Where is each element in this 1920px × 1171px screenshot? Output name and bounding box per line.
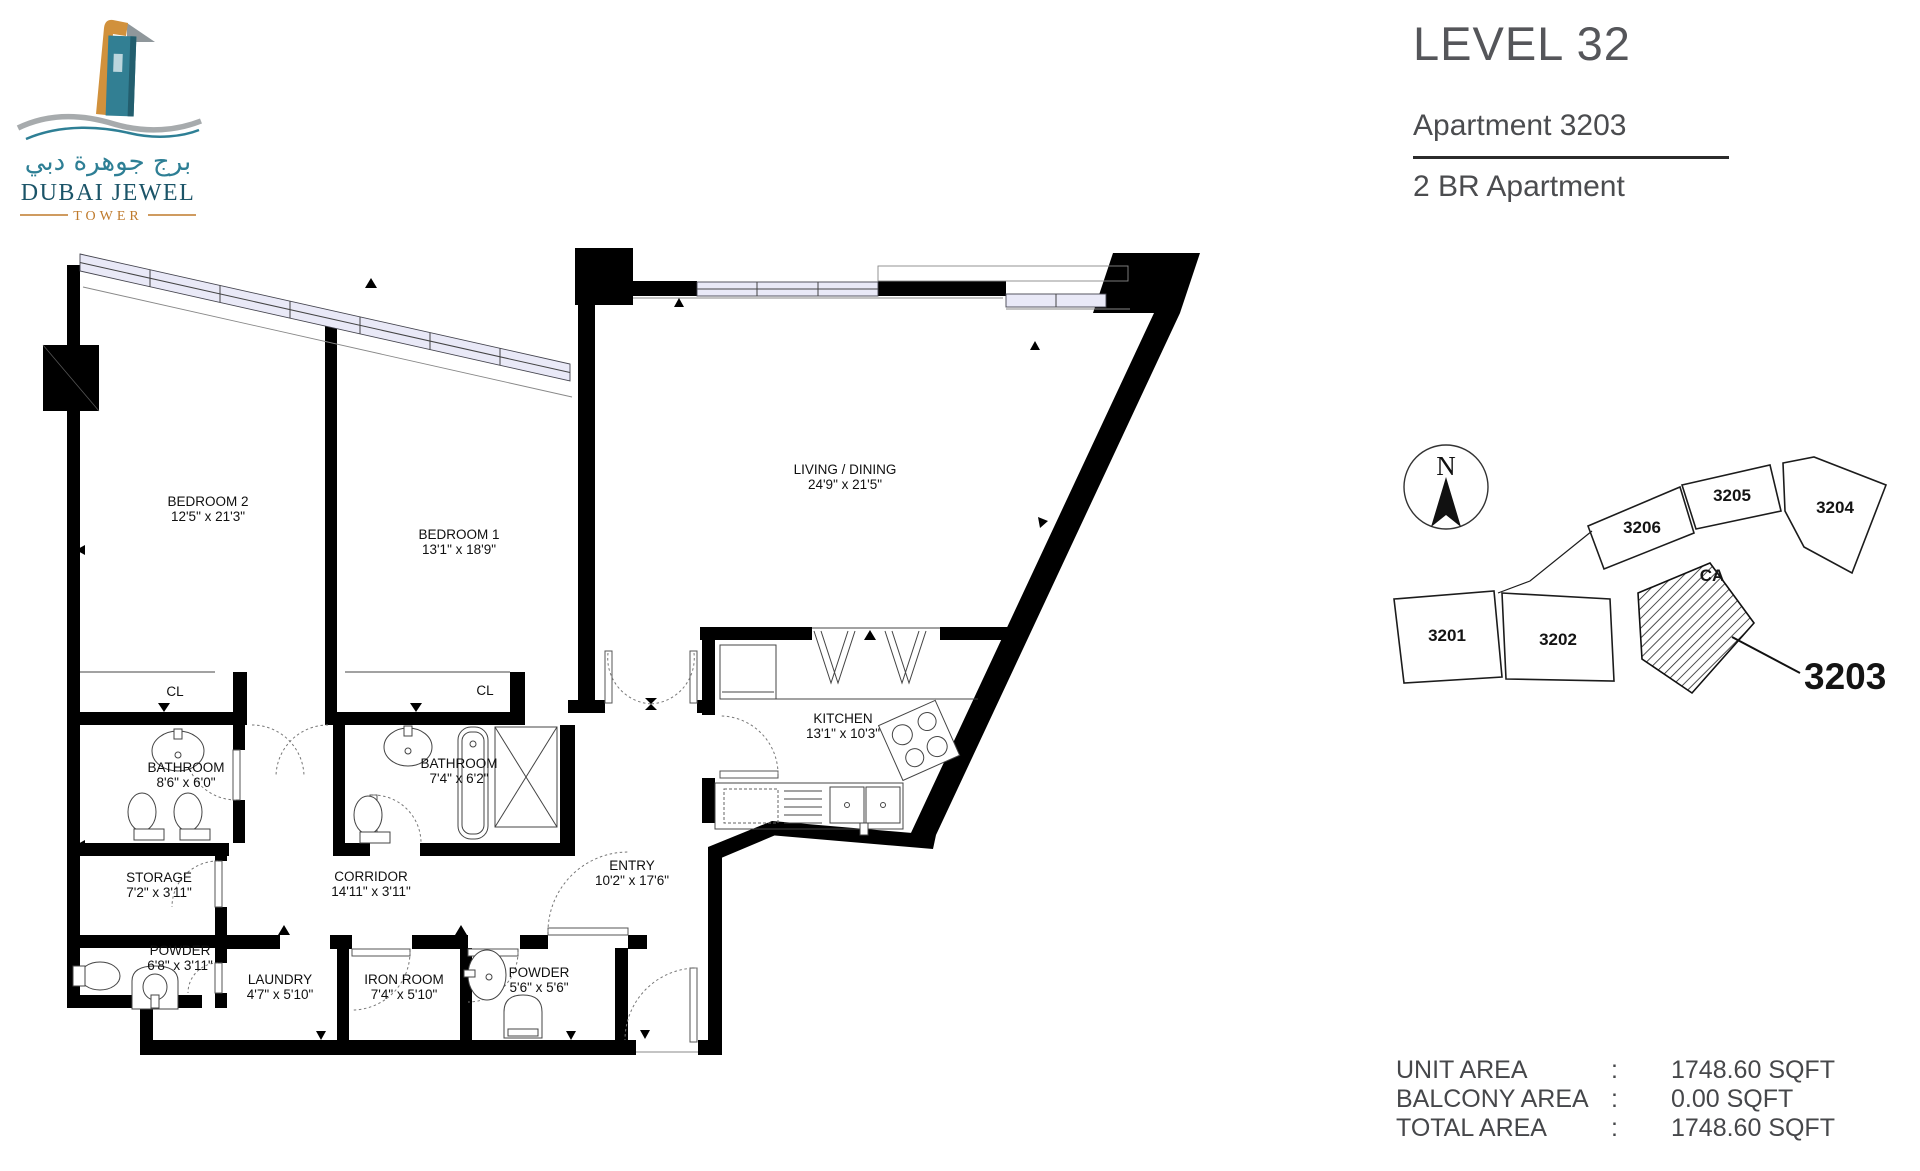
floor-plan: BEDROOM 2 12'5" x 21'3" BEDROOM 1 13'1" …: [40, 195, 1220, 1085]
area-row-balcony: BALCONY AREA : 0.00 SQFT: [1396, 1085, 1835, 1114]
room-storage: STORAGE: [126, 870, 192, 885]
unit-3204-label: 3204: [1816, 498, 1854, 517]
unit-3202-label: 3202: [1539, 630, 1577, 649]
area-row-total: TOTAL AREA : 1748.60 SQFT: [1396, 1114, 1835, 1143]
area-row-unit: UNIT AREA : 1748.60 SQFT: [1396, 1056, 1835, 1085]
room-kitchen-dims: 13'1" x 10'3": [806, 726, 880, 741]
room-powder2-dims: 5'6" x 5'6": [509, 980, 568, 995]
logo-arabic-text: برج جوهرة دبي: [25, 147, 192, 177]
room-bedroom2-dims: 12'5" x 21'3": [171, 509, 245, 524]
room-iron: IRON ROOM: [364, 972, 444, 987]
room-laundry: LAUNDRY: [248, 972, 312, 987]
room-storage-dims: 7'2" x 3'11": [126, 885, 192, 900]
room-entry: ENTRY: [609, 858, 655, 873]
room-living-dims: 24'9" x 21'5": [808, 477, 882, 492]
room-kitchen: KITCHEN: [813, 711, 872, 726]
callout-leader-line: [1732, 637, 1800, 673]
room-powder2: POWDER: [509, 965, 570, 980]
north-label: N: [1436, 451, 1456, 481]
page: برج جوهرة دبي DUBAI JEWEL TOWER LEVEL 32…: [0, 0, 1920, 1171]
common-area-label: CA: [1700, 566, 1725, 585]
room-bath-right-dims: 7'4" x 6'2": [429, 771, 488, 786]
unit-3203-highlighted: [1638, 563, 1754, 693]
unit-3206-label: 3206: [1623, 518, 1661, 537]
area-separator: :: [1611, 1085, 1671, 1114]
apartment-title: Apartment 3203: [1413, 109, 1729, 159]
area-label: BALCONY AREA: [1396, 1085, 1611, 1114]
header: LEVEL 32 Apartment 3203 2 BR Apartment: [1413, 16, 1729, 204]
room-bedroom1: BEDROOM 1: [418, 527, 499, 542]
area-label: TOTAL AREA: [1396, 1114, 1611, 1143]
room-corridor: CORRIDOR: [334, 869, 408, 884]
key-plan: N 3206 3205 3204 3201 3202 CA 3203: [1380, 423, 1920, 745]
room-laundry-dims: 4'7" x 5'10": [247, 987, 314, 1002]
room-entry-dims: 10'2" x 17'6": [595, 873, 669, 888]
area-value: 0.00 SQFT: [1671, 1085, 1835, 1114]
room-bath-left: BATHROOM: [148, 760, 225, 775]
room-bath-right: BATHROOM: [421, 756, 498, 771]
logo-wave-grey: [18, 117, 201, 130]
logo-tower: [106, 36, 137, 117]
north-compass-icon: N: [1404, 445, 1488, 529]
unit-3205-label: 3205: [1713, 486, 1751, 505]
room-powder1: POWDER: [150, 943, 211, 958]
level-title: LEVEL 32: [1413, 16, 1729, 71]
room-cl-left: CL: [166, 684, 184, 699]
room-corridor-dims: 14'11" x 3'11": [331, 884, 411, 899]
room-living: LIVING / DINING: [794, 462, 897, 477]
double-door-meeting-mark: [645, 698, 657, 710]
area-table: UNIT AREA : 1748.60 SQFT BALCONY AREA : …: [1396, 1056, 1835, 1143]
area-separator: :: [1611, 1056, 1671, 1085]
apartment-type: 2 BR Apartment: [1413, 170, 1729, 204]
unit-3201-label: 3201: [1428, 626, 1466, 645]
ca-boundary-line: [1498, 531, 1592, 593]
unit-3203-callout: 3203: [1804, 656, 1886, 697]
room-bath-left-dims: 8'6" x 6'0": [156, 775, 215, 790]
room-cl-right: CL: [476, 683, 494, 698]
room-bedroom2: BEDROOM 2: [167, 494, 248, 509]
area-value: 1748.60 SQFT: [1671, 1114, 1835, 1143]
area-label: UNIT AREA: [1396, 1056, 1611, 1085]
room-powder1-dims: 6'8" x 3'11": [147, 958, 213, 973]
room-iron-dims: 7'4" x 5'10": [371, 987, 438, 1002]
area-value: 1748.60 SQFT: [1671, 1056, 1835, 1085]
room-bedroom1-dims: 13'1" x 18'9": [422, 542, 496, 557]
area-separator: :: [1611, 1114, 1671, 1143]
